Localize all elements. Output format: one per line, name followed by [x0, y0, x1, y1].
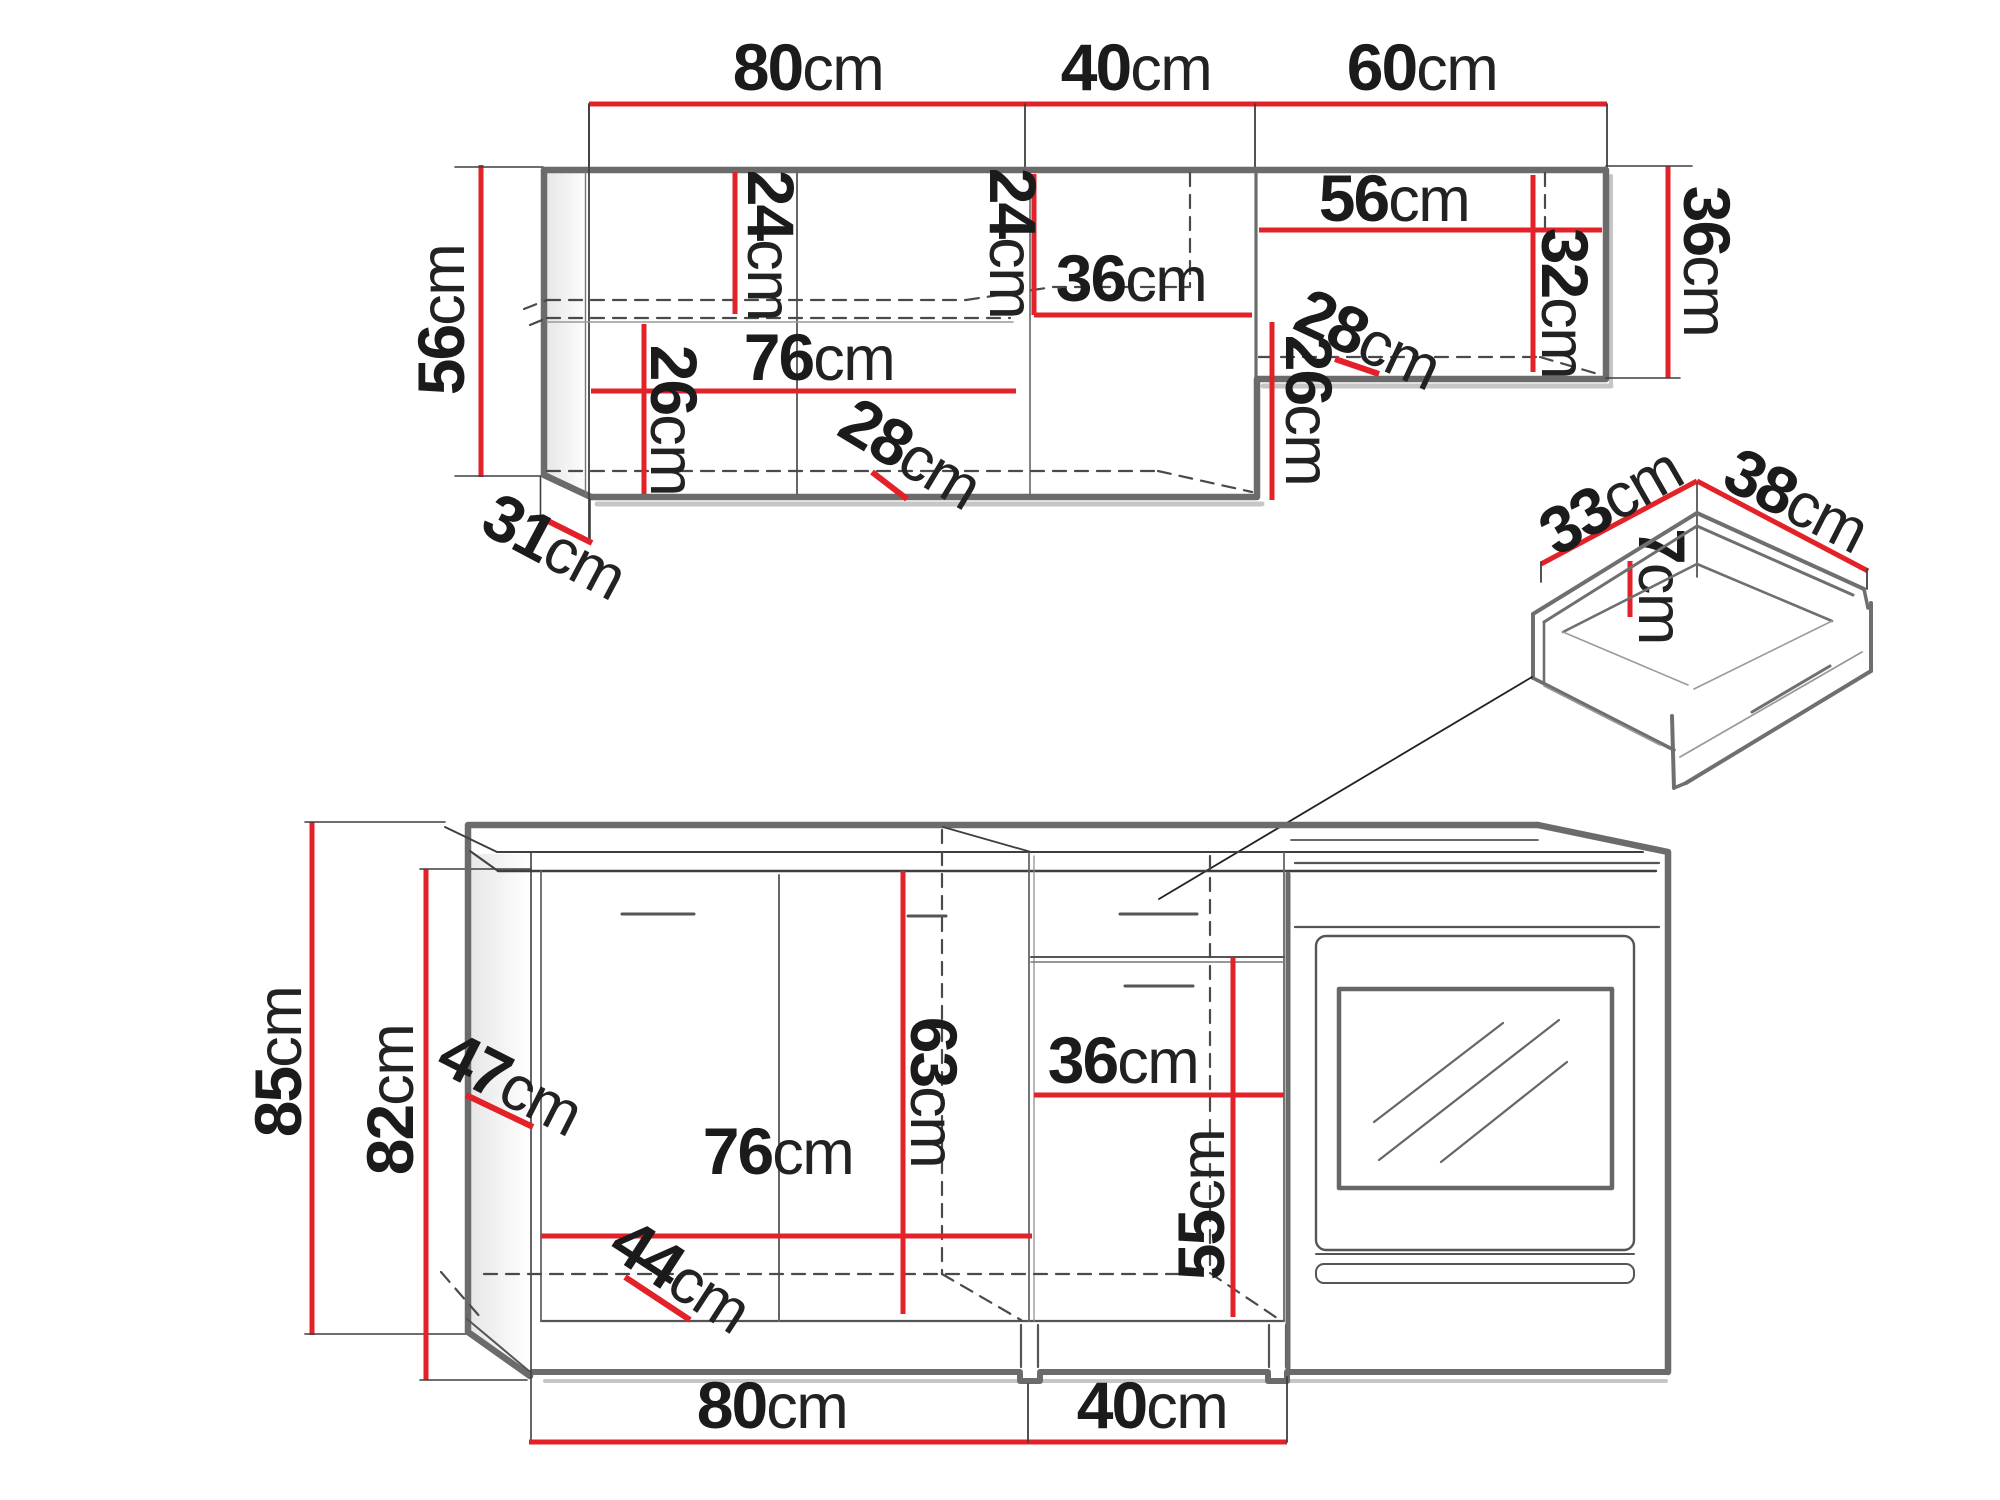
- svg-text:80cm: 80cm: [697, 1368, 847, 1442]
- svg-text:7cm: 7cm: [1625, 528, 1699, 644]
- svg-text:24cm: 24cm: [734, 170, 808, 320]
- svg-text:63cm: 63cm: [897, 1017, 971, 1167]
- svg-text:26cm: 26cm: [637, 345, 711, 495]
- svg-text:80cm: 80cm: [733, 30, 883, 104]
- svg-text:40cm: 40cm: [1061, 30, 1211, 104]
- svg-text:82cm: 82cm: [353, 1025, 427, 1175]
- svg-text:32cm: 32cm: [1528, 228, 1602, 378]
- svg-text:36cm: 36cm: [1670, 186, 1744, 336]
- svg-text:36cm: 36cm: [1048, 1023, 1198, 1097]
- svg-text:76cm: 76cm: [703, 1114, 853, 1188]
- svg-text:40cm: 40cm: [1077, 1368, 1227, 1442]
- svg-text:44cm: 44cm: [598, 1203, 764, 1347]
- svg-text:56cm: 56cm: [404, 245, 478, 395]
- svg-text:60cm: 60cm: [1347, 30, 1497, 104]
- svg-text:85cm: 85cm: [241, 987, 315, 1137]
- svg-text:76cm: 76cm: [744, 320, 894, 394]
- svg-text:38cm: 38cm: [1713, 433, 1881, 567]
- svg-text:56cm: 56cm: [1319, 161, 1469, 235]
- svg-text:36cm: 36cm: [1056, 241, 1206, 315]
- svg-text:24cm: 24cm: [976, 168, 1050, 318]
- svg-text:55cm: 55cm: [1164, 1130, 1238, 1280]
